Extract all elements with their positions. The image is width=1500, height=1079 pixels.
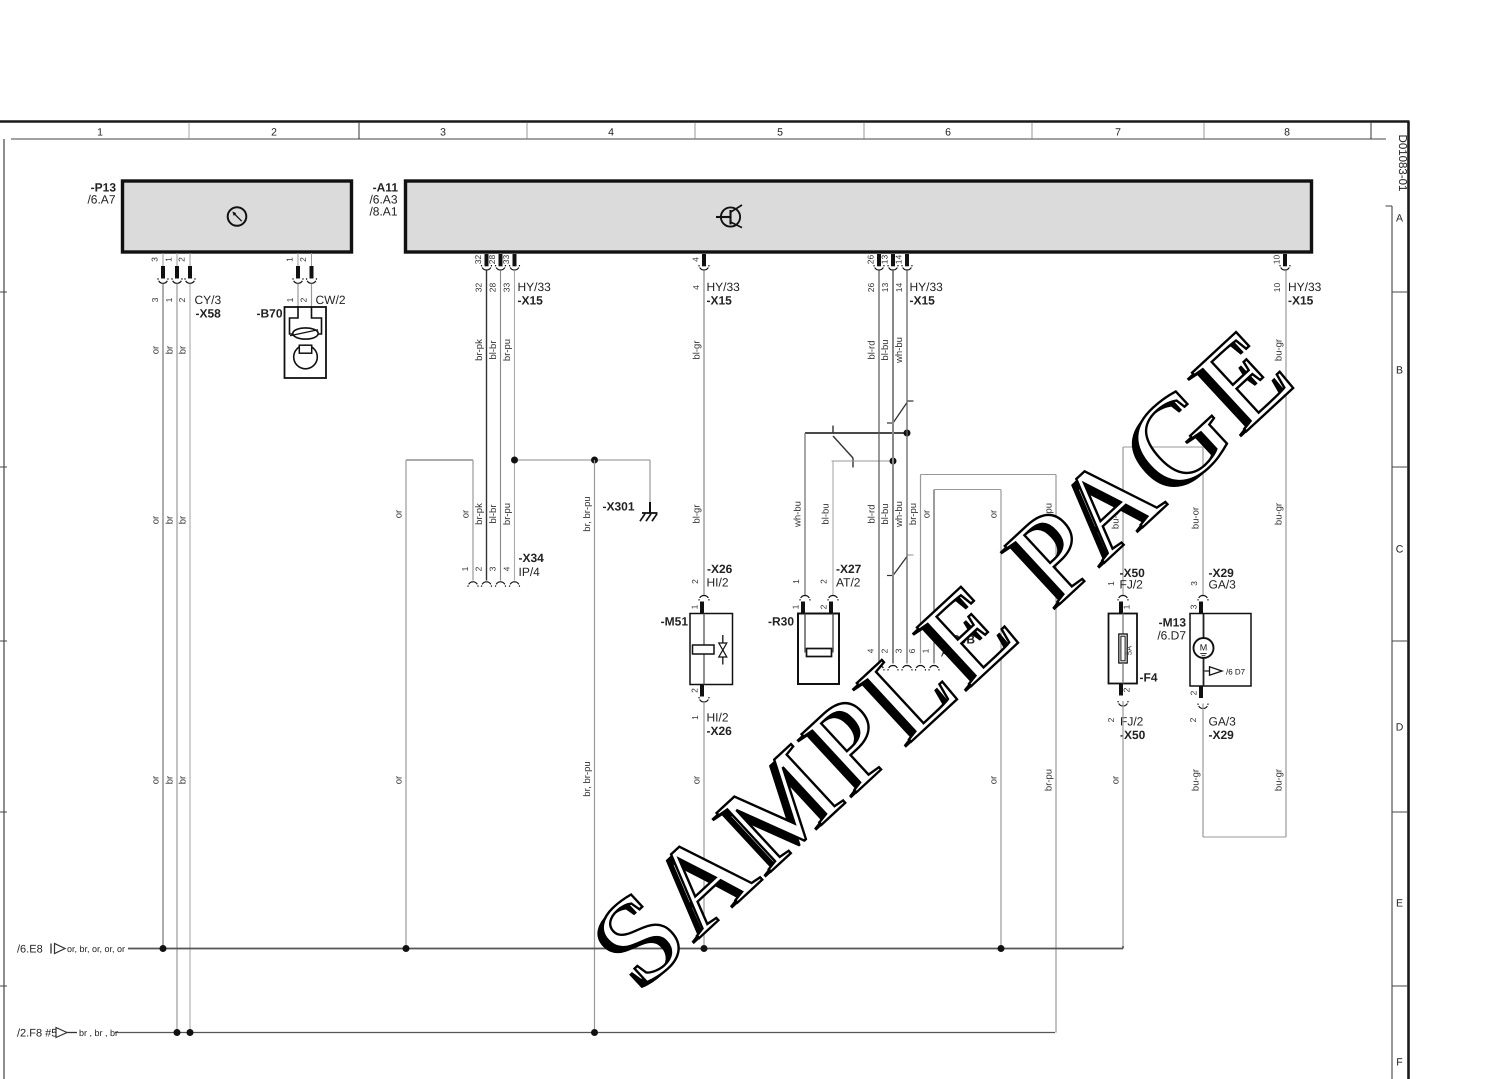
svg-text:bl-br: bl-br (488, 504, 499, 523)
svg-text:2: 2 (177, 297, 187, 302)
svg-text:/6.E8: /6.E8 (17, 944, 43, 956)
svg-text:bl-bu: bl-bu (880, 339, 891, 360)
svg-text:5A: 5A (1125, 646, 1134, 655)
svg-text:bl-br: bl-br (488, 340, 499, 359)
svg-text:14: 14 (894, 255, 904, 265)
svg-text:26: 26 (866, 283, 876, 293)
svg-text:4: 4 (608, 127, 614, 139)
svg-text:br , br , br: br , br , br (79, 1028, 118, 1038)
svg-text:/6 D7: /6 D7 (1226, 667, 1246, 676)
svg-text:2: 2 (690, 579, 700, 584)
svg-text:2: 2 (1189, 690, 1199, 695)
svg-text:3: 3 (488, 566, 498, 571)
svg-text:A: A (1396, 213, 1403, 225)
svg-text:bu-gr: bu-gr (1191, 769, 1202, 791)
svg-text:3: 3 (150, 257, 160, 262)
svg-text:13: 13 (880, 255, 890, 265)
svg-text:3: 3 (1189, 581, 1199, 586)
svg-text:or: or (394, 776, 405, 784)
svg-text:-X29: -X29 (1209, 728, 1235, 742)
svg-text:2: 2 (177, 257, 187, 262)
svg-text:E: E (1396, 898, 1403, 910)
svg-text:br: br (178, 516, 189, 524)
svg-text:CY/3: CY/3 (195, 293, 222, 307)
svg-text:7: 7 (1115, 127, 1121, 139)
svg-text:F: F (1396, 1057, 1402, 1069)
svg-text:-X27: -X27 (836, 562, 862, 576)
svg-text:-X50: -X50 (1120, 728, 1146, 742)
svg-text:br, br-pu: br, br-pu (582, 761, 593, 796)
svg-text:bu-gr: bu-gr (1274, 503, 1285, 525)
svg-text:HY/33: HY/33 (1288, 280, 1322, 294)
svg-text:2: 2 (299, 297, 309, 302)
svg-text:2: 2 (1188, 717, 1198, 722)
svg-text:26: 26 (866, 255, 876, 265)
svg-text:-X26: -X26 (707, 724, 733, 738)
svg-text:HI/2: HI/2 (707, 711, 729, 725)
svg-text:-F4: -F4 (1140, 671, 1158, 685)
svg-text:/6.A7: /6.A7 (87, 193, 115, 207)
svg-text:33: 33 (502, 283, 512, 293)
svg-text:D01083-01: D01083-01 (1396, 135, 1408, 192)
svg-text:bl-bu: bl-bu (821, 503, 832, 524)
svg-text:1: 1 (791, 579, 801, 584)
svg-text:br: br (165, 346, 176, 354)
svg-text:IP/4: IP/4 (519, 565, 541, 579)
svg-text:4: 4 (502, 566, 512, 571)
svg-text:wh-bu: wh-bu (894, 501, 905, 528)
svg-text:2: 2 (271, 127, 277, 139)
svg-text:bl-bu: bl-bu (880, 503, 891, 524)
svg-text:wh-bu: wh-bu (793, 501, 804, 528)
svg-text:br-pu: br-pu (1044, 769, 1055, 791)
svg-text:1: 1 (690, 715, 700, 720)
svg-text:bl-rd: bl-rd (867, 504, 878, 523)
svg-text:br-pu: br-pu (502, 503, 513, 525)
svg-text:or, br, or, or, or: or, br, or, or, or (67, 944, 125, 954)
svg-text:GA/3: GA/3 (1209, 578, 1237, 592)
svg-text:CW/2: CW/2 (316, 293, 346, 307)
svg-text:-X301: -X301 (602, 500, 634, 514)
svg-text:br: br (178, 776, 189, 784)
svg-text:13: 13 (880, 283, 890, 293)
svg-text:1: 1 (164, 297, 174, 302)
svg-text:-X15: -X15 (518, 294, 544, 308)
svg-text:1: 1 (97, 127, 103, 139)
svg-text:14: 14 (894, 283, 904, 293)
svg-text:32: 32 (474, 283, 484, 293)
svg-text:wh-bu: wh-bu (894, 337, 905, 364)
svg-text:GA/3: GA/3 (1209, 715, 1237, 729)
svg-text:33: 33 (501, 255, 511, 265)
svg-text:bl-gr: bl-gr (692, 340, 703, 359)
svg-text:br: br (178, 346, 189, 354)
svg-text:or: or (1111, 776, 1122, 784)
svg-text:br, br-pu: br, br-pu (582, 496, 593, 531)
svg-text:br-pk: br-pk (474, 503, 485, 525)
svg-text:-X58: -X58 (196, 307, 222, 321)
svg-text:-X34: -X34 (519, 551, 545, 565)
svg-text:5: 5 (777, 127, 783, 139)
svg-text:or: or (989, 776, 1000, 784)
svg-text:bl-gr: bl-gr (692, 504, 703, 523)
svg-text:or: or (394, 510, 405, 518)
svg-text:/8.A1: /8.A1 (369, 205, 397, 219)
svg-text:2: 2 (1106, 717, 1116, 722)
svg-text:D: D (1396, 722, 1404, 734)
svg-text:or: or (692, 776, 703, 784)
svg-text:M: M (1200, 643, 1208, 653)
svg-text:C: C (1396, 544, 1404, 556)
svg-text:-X26: -X26 (707, 562, 733, 576)
svg-text:28: 28 (487, 255, 497, 265)
svg-text:2: 2 (690, 688, 700, 693)
svg-text:3: 3 (440, 127, 446, 139)
svg-text:br-pu: br-pu (502, 339, 513, 361)
svg-text:-X15: -X15 (707, 294, 733, 308)
svg-text:10: 10 (1272, 283, 1282, 293)
svg-text:1: 1 (285, 297, 295, 302)
svg-text:/2.F8 #5: /2.F8 #5 (17, 1028, 57, 1040)
svg-text:3: 3 (1189, 604, 1199, 609)
svg-text:br-pu: br-pu (908, 503, 919, 525)
svg-text:HY/33: HY/33 (910, 280, 944, 294)
svg-text:28: 28 (488, 283, 498, 293)
svg-text:/6.D7: /6.D7 (1157, 629, 1186, 643)
svg-text:-X15: -X15 (910, 294, 936, 308)
svg-text:6: 6 (945, 127, 951, 139)
svg-text:8: 8 (1284, 127, 1290, 139)
svg-text:2: 2 (819, 604, 829, 609)
svg-text:1: 1 (791, 604, 801, 609)
svg-text:1: 1 (285, 257, 295, 262)
svg-text:B: B (1396, 365, 1403, 377)
svg-text:4: 4 (691, 257, 701, 262)
svg-text:3: 3 (150, 297, 160, 302)
svg-text:1: 1 (690, 604, 700, 609)
svg-text:-M13: -M13 (1159, 616, 1187, 630)
svg-text:4: 4 (691, 285, 701, 290)
svg-text:br-pk: br-pk (474, 339, 485, 361)
svg-text:or: or (151, 516, 162, 524)
svg-text:or: or (151, 776, 162, 784)
svg-text:br: br (165, 516, 176, 524)
svg-text:HY/33: HY/33 (707, 280, 741, 294)
svg-text:10: 10 (1272, 255, 1282, 265)
svg-text:1: 1 (164, 257, 174, 262)
svg-text:-X15: -X15 (1288, 294, 1314, 308)
svg-text:or: or (922, 510, 933, 518)
svg-text:AT/2: AT/2 (836, 576, 861, 590)
svg-text:or: or (461, 510, 472, 518)
svg-text:2: 2 (1122, 687, 1132, 692)
svg-text:or: or (151, 346, 162, 354)
svg-text:1: 1 (460, 566, 470, 571)
svg-text:2: 2 (298, 257, 308, 262)
svg-text:HI/2: HI/2 (707, 576, 729, 590)
svg-text:2: 2 (819, 579, 829, 584)
svg-text:HY/33: HY/33 (518, 280, 552, 294)
svg-text:2: 2 (474, 566, 484, 571)
svg-text:-B70: -B70 (256, 307, 282, 321)
svg-text:1: 1 (1122, 604, 1132, 609)
svg-text:bu-gr: bu-gr (1274, 769, 1285, 791)
svg-text:bl-rd: bl-rd (867, 340, 878, 359)
svg-text:-R30: -R30 (768, 615, 794, 629)
svg-text:32: 32 (473, 255, 483, 265)
svg-text:br: br (165, 776, 176, 784)
svg-text:-M51: -M51 (661, 615, 689, 629)
